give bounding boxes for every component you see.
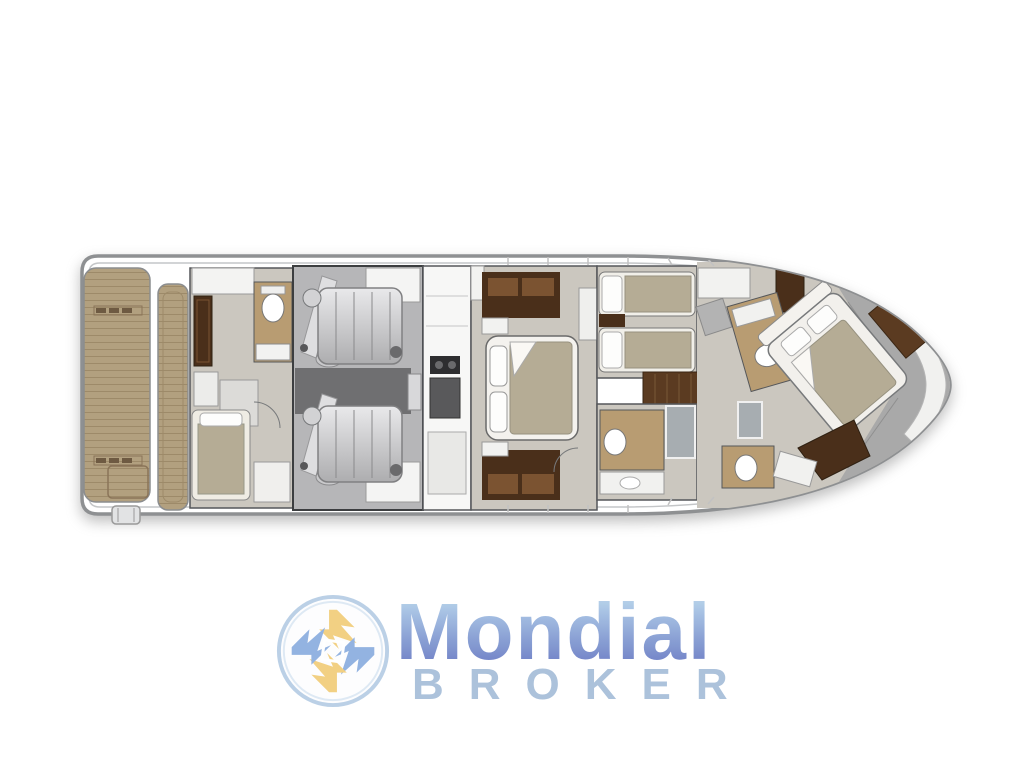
pillow bbox=[490, 346, 507, 386]
gearbox bbox=[408, 374, 421, 410]
master-bed bbox=[486, 336, 578, 440]
toilet bbox=[604, 429, 626, 455]
mid-bathroom bbox=[597, 404, 697, 500]
teak-walkway bbox=[158, 284, 188, 510]
master-cabinet-top bbox=[482, 272, 560, 318]
stern-locker bbox=[192, 268, 254, 294]
shower bbox=[666, 406, 695, 458]
twin-bed-1 bbox=[599, 272, 695, 316]
twin-bed-2 bbox=[599, 328, 695, 372]
galley-counter bbox=[428, 432, 466, 494]
mondial-broker-logo: Mondial BROKER bbox=[274, 592, 753, 710]
engine-starboard bbox=[300, 394, 402, 485]
mondial-broker-emblem-icon bbox=[274, 592, 392, 710]
galley-column bbox=[423, 266, 471, 510]
vip-closet bbox=[698, 268, 750, 298]
yacht-floor-plan bbox=[78, 252, 954, 518]
pillow bbox=[602, 332, 622, 368]
master-cabinet-bottom bbox=[482, 450, 560, 500]
toilet bbox=[735, 455, 757, 481]
pillow bbox=[490, 392, 507, 432]
shower bbox=[738, 402, 762, 438]
twin-cabin bbox=[597, 266, 697, 378]
crew-quarters bbox=[190, 268, 293, 508]
nightstand bbox=[482, 442, 508, 456]
pillow bbox=[200, 413, 242, 426]
sink bbox=[256, 344, 290, 360]
crew-bed bbox=[192, 410, 250, 500]
master-cabin bbox=[471, 266, 597, 510]
engine-port bbox=[300, 276, 402, 367]
engine-room bbox=[293, 266, 423, 510]
oven bbox=[430, 378, 460, 418]
master-closet bbox=[579, 288, 597, 340]
toilet bbox=[262, 294, 284, 322]
pillow bbox=[602, 276, 622, 312]
swim-platform bbox=[84, 268, 150, 502]
twin-nightstand bbox=[599, 314, 625, 327]
swim-ladder bbox=[112, 506, 140, 524]
nightstand bbox=[482, 318, 508, 334]
brand-subtitle: BROKER bbox=[412, 663, 753, 707]
crew-head bbox=[254, 282, 292, 362]
